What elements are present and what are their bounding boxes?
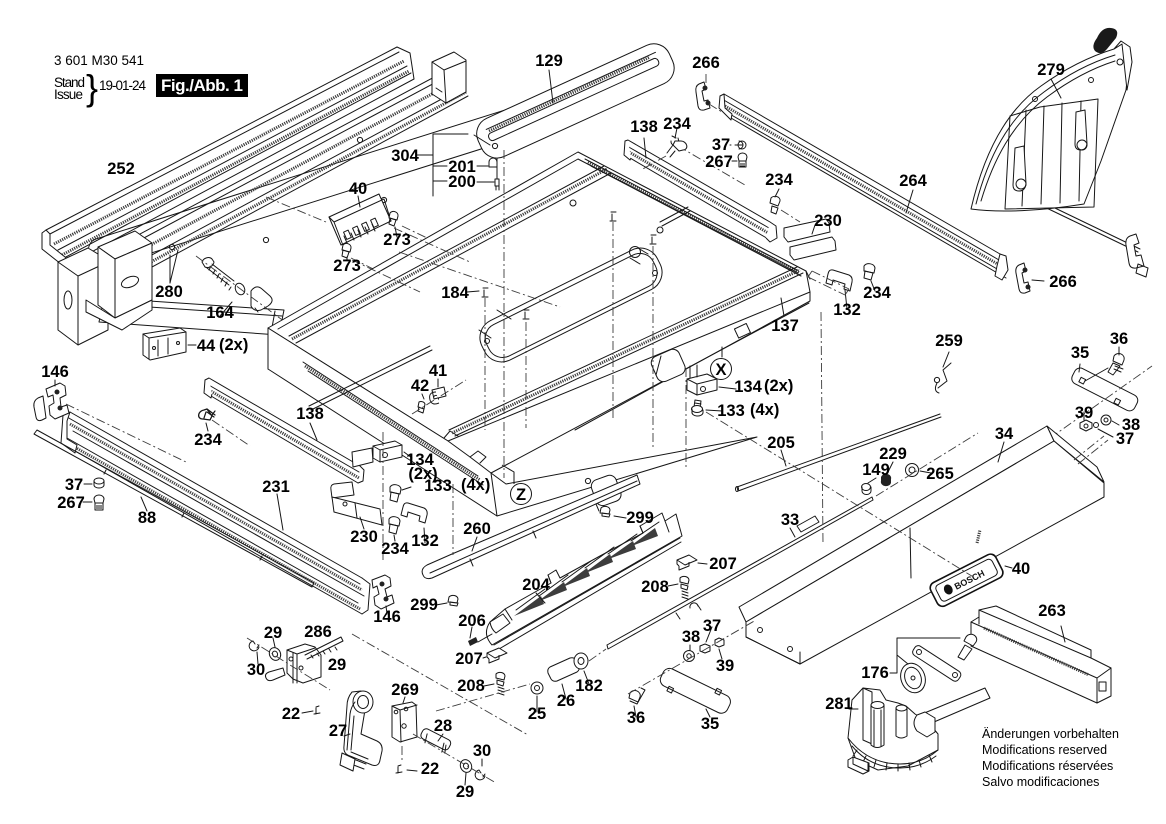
svg-text:36: 36	[627, 709, 645, 727]
svg-text:280: 280	[155, 283, 183, 301]
svg-text:137: 137	[771, 317, 799, 335]
svg-text:208: 208	[457, 677, 485, 695]
svg-text:(4x): (4x)	[461, 476, 490, 494]
svg-text:133: 133	[717, 402, 745, 420]
svg-text:164: 164	[206, 304, 234, 322]
svg-text:37: 37	[712, 136, 730, 154]
svg-text:207: 207	[709, 555, 737, 573]
svg-text:19-01-24: 19-01-24	[99, 78, 146, 93]
svg-text:205: 205	[767, 434, 795, 452]
svg-text:35: 35	[701, 715, 719, 733]
svg-text:234: 234	[381, 540, 409, 558]
svg-text:252: 252	[107, 160, 135, 178]
svg-text:26: 26	[557, 692, 575, 710]
svg-text:(2x): (2x)	[764, 377, 793, 395]
svg-text:304: 304	[391, 147, 419, 165]
svg-text:208: 208	[641, 578, 669, 596]
svg-text:267: 267	[57, 494, 85, 512]
svg-text:133: 133	[424, 477, 452, 495]
svg-text:206: 206	[458, 612, 486, 630]
svg-text:234: 234	[863, 284, 891, 302]
svg-text:279: 279	[1037, 61, 1065, 79]
svg-text:234: 234	[765, 171, 793, 189]
svg-text:29: 29	[456, 783, 474, 801]
svg-text:281: 281	[825, 695, 853, 713]
svg-text:88: 88	[138, 509, 156, 527]
svg-text:Änderungen vorbehalten: Änderungen vorbehalten	[982, 727, 1119, 741]
svg-text:42: 42	[411, 377, 429, 395]
svg-text:269: 269	[391, 681, 419, 699]
svg-text:230: 230	[350, 528, 378, 546]
svg-text:299: 299	[410, 596, 438, 614]
svg-text:182: 182	[575, 677, 603, 695]
svg-text:204: 204	[522, 576, 550, 594]
svg-text:}: }	[86, 67, 98, 108]
svg-text:264: 264	[899, 172, 927, 190]
svg-text:X: X	[715, 361, 726, 379]
svg-text:176: 176	[861, 664, 889, 682]
svg-text:22: 22	[421, 760, 439, 778]
svg-text:149: 149	[862, 461, 890, 479]
svg-text:Modifications reserved: Modifications reserved	[982, 743, 1107, 757]
svg-text:146: 146	[41, 363, 69, 381]
svg-text:260: 260	[463, 520, 491, 538]
svg-text:273: 273	[383, 231, 411, 249]
svg-text:266: 266	[1049, 273, 1077, 291]
svg-text:34: 34	[995, 425, 1014, 443]
svg-text:33: 33	[781, 511, 799, 529]
svg-text:Modifications réservées: Modifications réservées	[982, 759, 1113, 773]
svg-text:3 601 M30 541: 3 601 M30 541	[54, 53, 144, 68]
svg-text:41: 41	[429, 362, 447, 380]
svg-text:286: 286	[304, 623, 332, 641]
svg-text:230: 230	[814, 212, 842, 230]
svg-text:(4x): (4x)	[750, 401, 779, 419]
svg-text:266: 266	[692, 54, 720, 72]
svg-text:Salvo modificaciones: Salvo modificaciones	[982, 775, 1099, 789]
svg-text:146: 146	[373, 608, 401, 626]
svg-text:234: 234	[663, 115, 691, 133]
svg-text:Issue: Issue	[54, 87, 83, 102]
svg-text:138: 138	[630, 118, 658, 136]
svg-text:39: 39	[1075, 404, 1093, 422]
svg-text:30: 30	[247, 661, 265, 679]
svg-text:29: 29	[264, 624, 282, 642]
svg-text:129: 129	[535, 52, 563, 70]
svg-text:234: 234	[194, 431, 222, 449]
svg-text:132: 132	[833, 301, 861, 319]
svg-text:37: 37	[65, 476, 83, 494]
svg-text:37: 37	[1116, 430, 1134, 448]
svg-text:35: 35	[1071, 344, 1089, 362]
svg-text:28: 28	[434, 717, 452, 735]
svg-text:134: 134	[734, 378, 762, 396]
svg-text:37: 37	[703, 617, 721, 635]
svg-text:259: 259	[935, 332, 963, 350]
svg-text:(2x): (2x)	[219, 336, 248, 354]
svg-text:25: 25	[528, 705, 546, 723]
svg-text:273: 273	[333, 257, 361, 275]
svg-text:267: 267	[705, 153, 733, 171]
svg-text:40: 40	[349, 180, 367, 198]
svg-text:299: 299	[626, 509, 654, 527]
svg-text:207: 207	[455, 650, 483, 668]
svg-text:27: 27	[329, 722, 347, 740]
svg-text:138: 138	[296, 405, 324, 423]
svg-text:30: 30	[473, 742, 491, 760]
svg-text:132: 132	[411, 532, 439, 550]
svg-text:231: 231	[262, 478, 290, 496]
svg-text:39: 39	[716, 657, 734, 675]
svg-text:200: 200	[448, 173, 476, 191]
svg-text:22: 22	[282, 705, 300, 723]
svg-text:36: 36	[1110, 330, 1128, 348]
svg-text:263: 263	[1038, 602, 1066, 620]
svg-text:40: 40	[1012, 560, 1030, 578]
svg-text:38: 38	[682, 628, 700, 646]
svg-text:29: 29	[328, 656, 346, 674]
svg-text:184: 184	[441, 284, 469, 302]
svg-text:44: 44	[197, 337, 216, 355]
svg-text:Fig./Abb. 1: Fig./Abb. 1	[161, 76, 243, 95]
svg-text:Z: Z	[516, 486, 526, 504]
svg-text:265: 265	[926, 465, 954, 483]
